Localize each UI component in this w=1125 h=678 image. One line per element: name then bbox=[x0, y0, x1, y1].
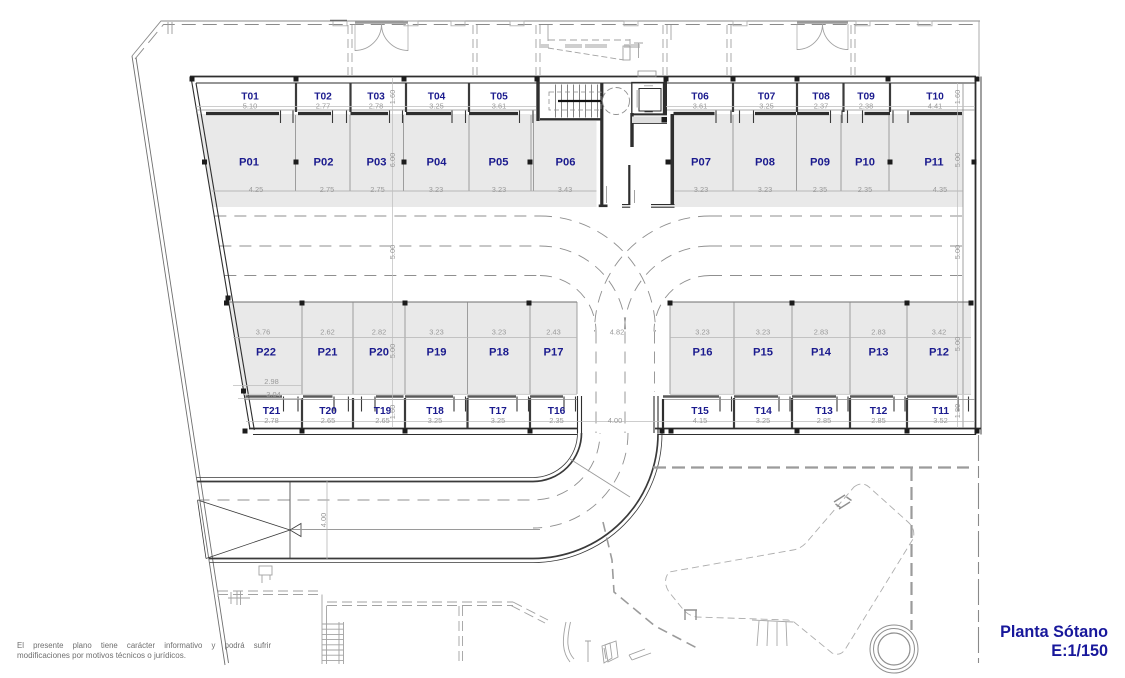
svg-text:2.78: 2.78 bbox=[264, 416, 278, 425]
svg-text:3.25: 3.25 bbox=[756, 416, 770, 425]
svg-text:4.00: 4.00 bbox=[319, 513, 328, 527]
svg-text:3.23: 3.23 bbox=[758, 185, 772, 194]
svg-text:3.61: 3.61 bbox=[693, 102, 707, 111]
svg-text:P01: P01 bbox=[239, 157, 259, 169]
svg-text:2.78: 2.78 bbox=[369, 102, 383, 111]
svg-text:P09: P09 bbox=[810, 157, 830, 169]
svg-text:El presente plano tiene caráct: El presente plano tiene carácter informa… bbox=[17, 641, 271, 650]
svg-text:3.04: 3.04 bbox=[266, 390, 280, 399]
svg-text:2.35: 2.35 bbox=[549, 416, 563, 425]
svg-text:3.25: 3.25 bbox=[429, 102, 443, 111]
svg-text:3.52: 3.52 bbox=[933, 416, 947, 425]
svg-text:3.61: 3.61 bbox=[492, 102, 506, 111]
svg-text:2.38: 2.38 bbox=[859, 102, 873, 111]
svg-text:2.75: 2.75 bbox=[320, 185, 334, 194]
svg-text:4.82: 4.82 bbox=[610, 328, 624, 337]
svg-text:2.98: 2.98 bbox=[264, 377, 278, 386]
svg-text:6.00: 6.00 bbox=[388, 153, 397, 167]
svg-text:2.85: 2.85 bbox=[871, 416, 885, 425]
svg-text:P12: P12 bbox=[929, 347, 949, 359]
svg-text:E:1/150: E:1/150 bbox=[1051, 642, 1108, 660]
svg-text:P21: P21 bbox=[318, 347, 338, 359]
svg-text:P06: P06 bbox=[556, 157, 576, 169]
svg-text:3.23: 3.23 bbox=[695, 328, 709, 337]
svg-text:P04: P04 bbox=[427, 157, 448, 169]
svg-text:5.00: 5.00 bbox=[953, 153, 962, 167]
svg-text:2.82: 2.82 bbox=[372, 328, 386, 337]
svg-text:3.23: 3.23 bbox=[429, 328, 443, 337]
svg-text:P08: P08 bbox=[755, 157, 775, 169]
svg-text:P03: P03 bbox=[367, 157, 387, 169]
svg-text:4.00: 4.00 bbox=[608, 416, 622, 425]
svg-text:4.41: 4.41 bbox=[928, 102, 942, 111]
svg-text:3.43: 3.43 bbox=[558, 185, 572, 194]
svg-text:1.60: 1.60 bbox=[953, 90, 962, 104]
svg-text:P13: P13 bbox=[869, 347, 889, 359]
svg-text:2.35: 2.35 bbox=[858, 185, 872, 194]
svg-text:P02: P02 bbox=[314, 157, 334, 169]
svg-text:3.23: 3.23 bbox=[492, 328, 506, 337]
svg-text:3.23: 3.23 bbox=[492, 185, 506, 194]
svg-text:3.25: 3.25 bbox=[759, 102, 773, 111]
svg-text:2.77: 2.77 bbox=[316, 102, 330, 111]
svg-text:4.35: 4.35 bbox=[933, 185, 947, 194]
svg-text:2.65: 2.65 bbox=[321, 416, 335, 425]
svg-text:P16: P16 bbox=[693, 347, 713, 359]
svg-text:P10: P10 bbox=[855, 157, 875, 169]
svg-text:2.75: 2.75 bbox=[370, 185, 384, 194]
svg-text:2.37: 2.37 bbox=[814, 102, 828, 111]
svg-text:3.25: 3.25 bbox=[491, 416, 505, 425]
svg-text:P14: P14 bbox=[811, 347, 832, 359]
svg-text:5.00: 5.00 bbox=[953, 245, 962, 259]
svg-text:Planta Sótano: Planta Sótano bbox=[1000, 623, 1108, 641]
svg-text:4.15: 4.15 bbox=[693, 416, 707, 425]
svg-text:2.62: 2.62 bbox=[320, 328, 334, 337]
svg-text:modificaciones por motivos téc: modificaciones por motivos técnicos o ju… bbox=[17, 651, 186, 660]
svg-text:2.83: 2.83 bbox=[871, 328, 885, 337]
svg-text:3.42: 3.42 bbox=[932, 328, 946, 337]
svg-text:5.00: 5.00 bbox=[953, 337, 962, 351]
svg-text:P19: P19 bbox=[427, 347, 447, 359]
svg-text:1.60: 1.60 bbox=[388, 405, 397, 419]
svg-text:P11: P11 bbox=[924, 157, 943, 169]
svg-text:1.80: 1.80 bbox=[953, 404, 962, 418]
svg-text:P15: P15 bbox=[753, 347, 773, 359]
svg-text:2.43: 2.43 bbox=[546, 328, 560, 337]
svg-text:5.00: 5.00 bbox=[388, 245, 397, 259]
svg-text:4.25: 4.25 bbox=[249, 185, 263, 194]
svg-text:3.76: 3.76 bbox=[256, 328, 270, 337]
svg-text:2.35: 2.35 bbox=[813, 185, 827, 194]
svg-text:3.23: 3.23 bbox=[756, 328, 770, 337]
svg-text:2.83: 2.83 bbox=[814, 328, 828, 337]
svg-text:P07: P07 bbox=[691, 157, 711, 169]
svg-text:P22: P22 bbox=[256, 347, 276, 359]
svg-text:3.25: 3.25 bbox=[428, 416, 442, 425]
svg-text:P17: P17 bbox=[544, 347, 564, 359]
svg-text:3.23: 3.23 bbox=[429, 185, 443, 194]
svg-text:P20: P20 bbox=[369, 347, 389, 359]
svg-text:P18: P18 bbox=[489, 347, 509, 359]
svg-text:3.23: 3.23 bbox=[694, 185, 708, 194]
svg-text:2.85: 2.85 bbox=[817, 416, 831, 425]
svg-text:5.10: 5.10 bbox=[243, 102, 257, 111]
svg-text:P05: P05 bbox=[489, 157, 509, 169]
svg-text:5.00: 5.00 bbox=[388, 344, 397, 358]
svg-text:1.60: 1.60 bbox=[388, 90, 397, 104]
